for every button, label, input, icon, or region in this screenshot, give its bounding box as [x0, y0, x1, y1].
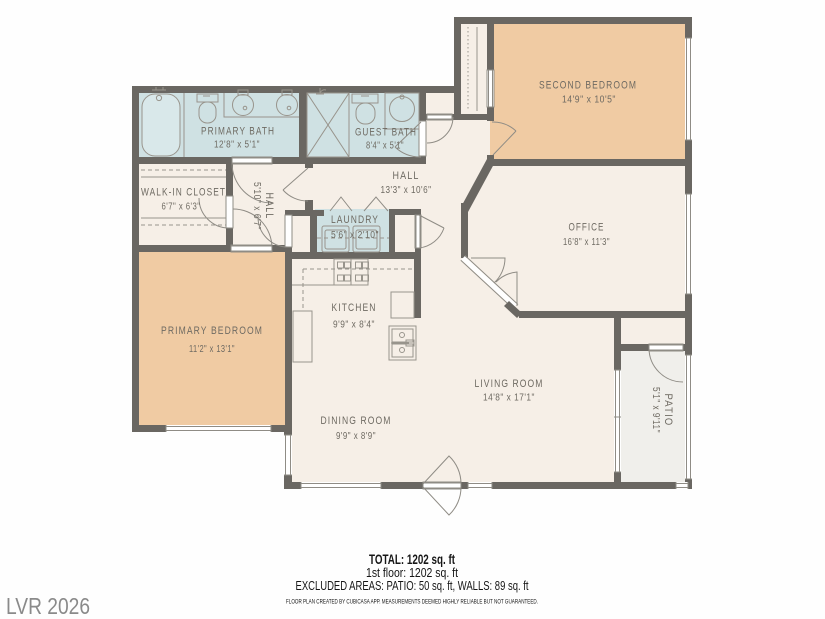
svg-text:TOTAL: 1202 sq. ft: TOTAL: 1202 sq. ft: [369, 552, 455, 567]
svg-text:PRIMARY BEDROOM: PRIMARY BEDROOM: [161, 325, 263, 337]
svg-text:6'7" x 6'3": 6'7" x 6'3": [162, 202, 201, 213]
svg-text:9'9" x 8'4": 9'9" x 8'4": [333, 320, 375, 331]
svg-text:OFFICE: OFFICE: [569, 222, 605, 234]
svg-text:5'1" x 9'11": 5'1" x 9'11": [650, 387, 661, 433]
svg-text:14'9" x 10'5": 14'9" x 10'5": [562, 95, 616, 106]
svg-text:PATIO: PATIO: [662, 394, 674, 427]
svg-text:11'2" x 13'1": 11'2" x 13'1": [189, 344, 235, 355]
svg-text:EXCLUDED AREAS: PATIO: 50 sq.: EXCLUDED AREAS: PATIO: 50 sq. ft, WALLS:…: [296, 579, 529, 593]
svg-text:LIVING ROOM: LIVING ROOM: [475, 378, 544, 390]
svg-text:5'6" x 2'10": 5'6" x 2'10": [331, 230, 379, 241]
svg-text:13'3" x 10'6": 13'3" x 10'6": [381, 185, 432, 196]
svg-text:GUEST BATH: GUEST BATH: [355, 127, 417, 139]
svg-text:16'8" x 11'3": 16'8" x 11'3": [563, 237, 610, 248]
svg-text:HALL: HALL: [393, 170, 420, 182]
svg-text:KITCHEN: KITCHEN: [332, 302, 377, 314]
svg-text:FLOOR PLAN CREATED BY CUBICASA: FLOOR PLAN CREATED BY CUBICASA APP. MEAS…: [286, 600, 538, 606]
svg-text:9'9" x 8'9": 9'9" x 8'9": [336, 431, 376, 442]
svg-text:1st floor: 1202 sq. ft: 1st floor: 1202 sq. ft: [366, 566, 458, 580]
svg-text:8'4" x 5'1": 8'4" x 5'1": [366, 141, 404, 152]
svg-text:5'10" x 6'7": 5'10" x 6'7": [251, 182, 262, 230]
svg-text:LAUNDRY: LAUNDRY: [331, 214, 379, 226]
svg-text:SECOND BEDROOM: SECOND BEDROOM: [539, 80, 637, 92]
svg-text:WALK-IN CLOSET: WALK-IN CLOSET: [141, 187, 226, 199]
svg-text:14'8" x 17'1": 14'8" x 17'1": [483, 393, 535, 404]
svg-text:PRIMARY BATH: PRIMARY BATH: [201, 126, 275, 138]
svg-text:12'8" x 5'1": 12'8" x 5'1": [214, 140, 260, 151]
svg-text:LVR 2026: LVR 2026: [6, 593, 90, 619]
svg-text:HALL: HALL: [263, 193, 275, 220]
svg-text:DINING ROOM: DINING ROOM: [321, 415, 392, 427]
